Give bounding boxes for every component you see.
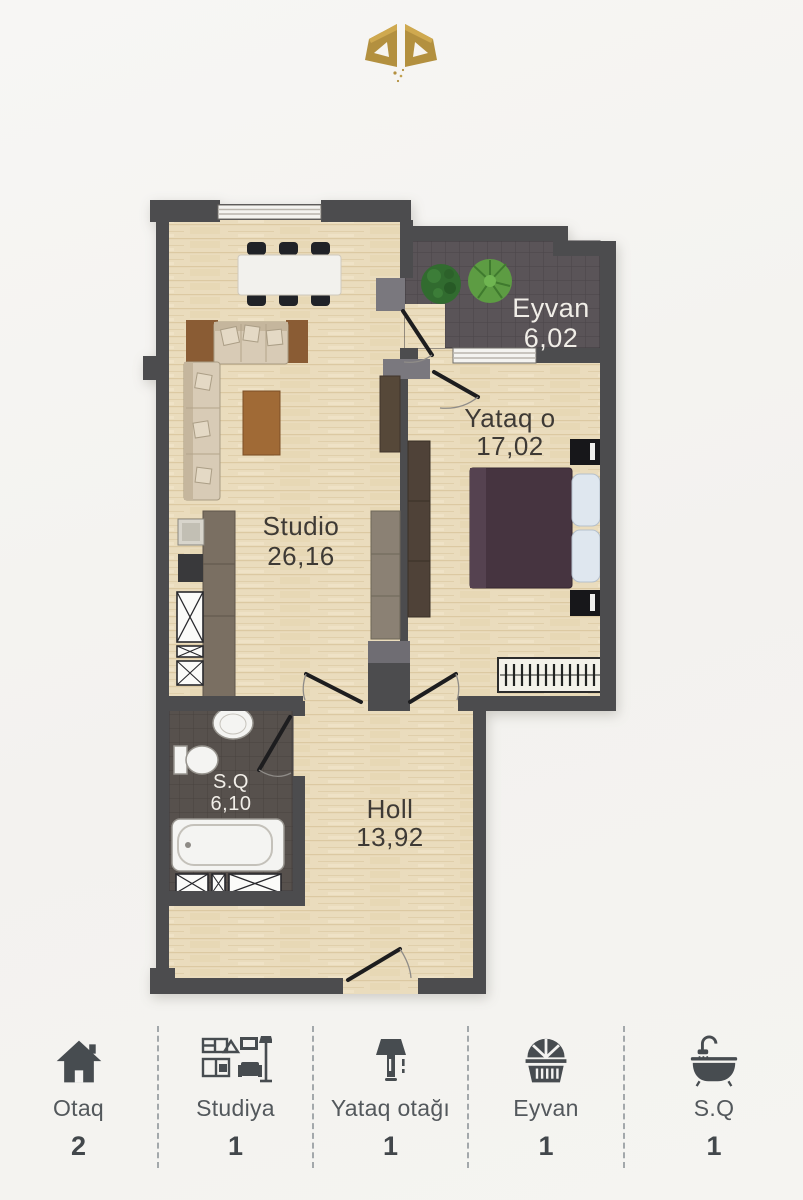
bathtub-icon [685,1026,743,1088]
bed-pillow [572,530,600,582]
nightstand [570,590,600,616]
legend-item-sq: S.Q 1 [623,1026,803,1168]
legend: Otaq 2 [0,1026,803,1168]
studio-label: Studio [263,511,340,541]
yataq-label: Yataq o [464,403,555,433]
plant [468,259,512,303]
legend-item-studiya: Studiya 1 [157,1026,312,1168]
toilet-tank [174,746,187,774]
nightstand [570,439,600,465]
legend-item-otaq: Otaq 2 [0,1026,157,1168]
legend-count: 1 [706,1131,721,1162]
legend-count: 1 [383,1131,398,1162]
holl-label: Holl [367,794,414,824]
gold-emblem-icon [356,12,446,90]
dining-table [238,255,341,295]
kitchen-appliances [177,592,203,685]
holl-area: 13,92 [356,822,424,852]
eyvan-area: 6,02 [524,323,579,353]
studio-furniture-icon [200,1026,272,1088]
cabinet [371,511,400,639]
bed-pillow [572,474,600,526]
gold-emblem-logo [356,12,446,90]
dining-set [238,242,341,306]
table-lamp-icon [367,1026,415,1088]
pillar-cap [368,641,410,663]
floor-plan-page: Studio 26,16 Yataq o 17,02 Eyvan 6,02 Ho… [0,0,803,1200]
coffee-table [243,391,280,455]
studio-area: 26,16 [267,541,335,571]
sq-area: 6,10 [211,793,252,815]
legend-item-yataq-otagi: Yataq otağı 1 [312,1026,467,1168]
legend-label: Studiya [196,1095,275,1122]
legend-count: 1 [538,1131,553,1162]
door-jamb [376,278,405,311]
stove [178,554,203,582]
legend-label: Yataq otağı [331,1095,450,1122]
plant [421,264,461,304]
floor-plan: Studio 26,16 Yataq o 17,02 Eyvan 6,02 Ho… [138,196,638,1001]
legend-count: 1 [228,1131,243,1162]
balcony-icon [520,1026,572,1088]
toilet [186,746,218,774]
window [218,205,321,219]
kitchen-run [177,511,235,699]
bathroom-cabinets [176,874,281,893]
legend-item-eyvan: Eyvan 1 [467,1026,623,1168]
yataq-area: 17,02 [476,431,544,461]
sq-label: S.Q [213,771,249,793]
radiator [498,658,604,692]
wardrobe [408,441,430,617]
legend-label: Otaq [53,1095,104,1122]
legend-count: 2 [71,1131,86,1162]
legend-label: Eyvan [513,1095,578,1122]
eyvan-label: Eyvan [512,293,590,323]
house-icon [53,1026,105,1088]
cabinet [380,376,400,452]
legend-label: S.Q [694,1095,735,1122]
